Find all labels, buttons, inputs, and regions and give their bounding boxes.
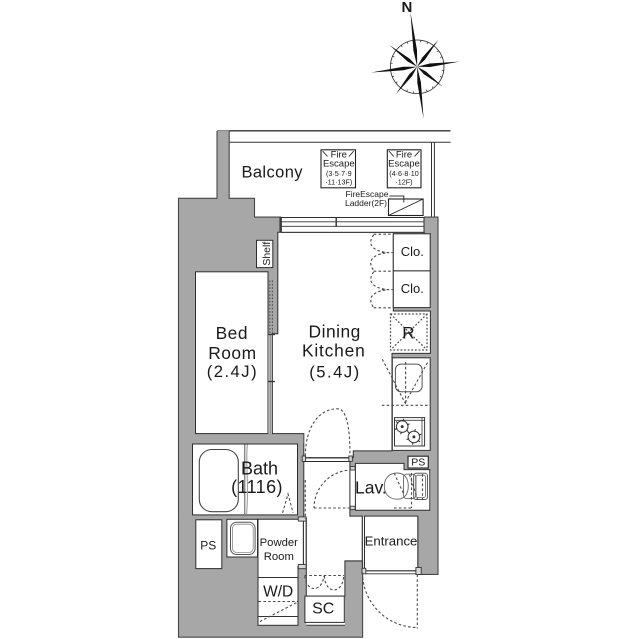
svg-text:Room: Room [208,343,256,363]
svg-text:W/D: W/D [263,583,293,600]
svg-text:Kitchen: Kitchen [302,341,366,361]
svg-text:·11·13F): ·11·13F) [325,178,352,187]
svg-text:Escape: Escape [323,159,355,170]
svg-text:Lav.: Lav. [355,477,387,497]
svg-text:Ladder(2F): Ladder(2F) [345,198,387,208]
svg-text:PS: PS [411,457,425,469]
svg-text:SC: SC [312,601,334,618]
svg-text:Balcony: Balcony [241,164,303,182]
svg-text:Clo.: Clo. [401,244,424,259]
svg-text:Bath: Bath [241,459,278,479]
svg-text:N: N [401,0,412,16]
svg-text:Clo.: Clo. [401,281,424,296]
svg-text:Powder: Powder [260,537,299,549]
svg-text:Shelf: Shelf [261,242,273,266]
svg-text:(2.4J): (2.4J) [207,362,258,381]
svg-text:(1116): (1116) [231,477,283,497]
svg-text:Entrance: Entrance [365,533,418,548]
svg-text:Room: Room [264,551,294,563]
svg-text:Bed: Bed [216,323,248,343]
svg-text:(5.4J): (5.4J) [309,362,360,381]
svg-text:Dining: Dining [309,321,361,341]
svg-text:R: R [402,323,414,342]
svg-text:PS: PS [200,538,216,552]
svg-text:·12F): ·12F) [395,178,412,187]
svg-text:Escape: Escape [388,159,420,170]
